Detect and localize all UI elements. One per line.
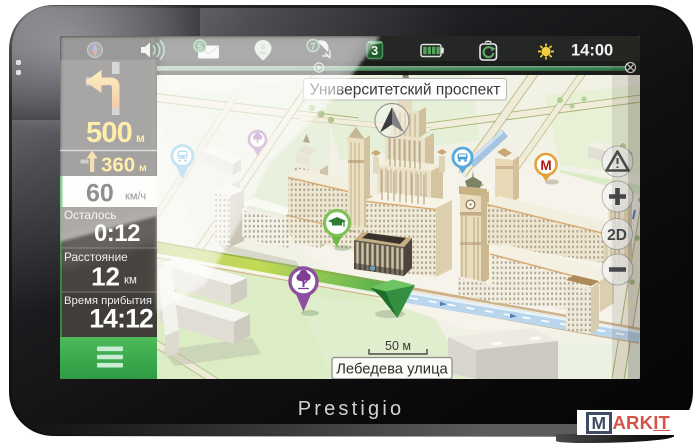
svg-text:14:12: 14:12 xyxy=(89,304,153,334)
svg-text:12: 12 xyxy=(91,262,120,292)
svg-text:50 м: 50 м xyxy=(385,339,411,353)
svg-text:Лебедева улица: Лебедева улица xyxy=(336,362,448,378)
svg-text:км: км xyxy=(124,275,137,287)
svg-text:14:00: 14:00 xyxy=(571,42,613,60)
svg-text:М: М xyxy=(540,158,551,173)
